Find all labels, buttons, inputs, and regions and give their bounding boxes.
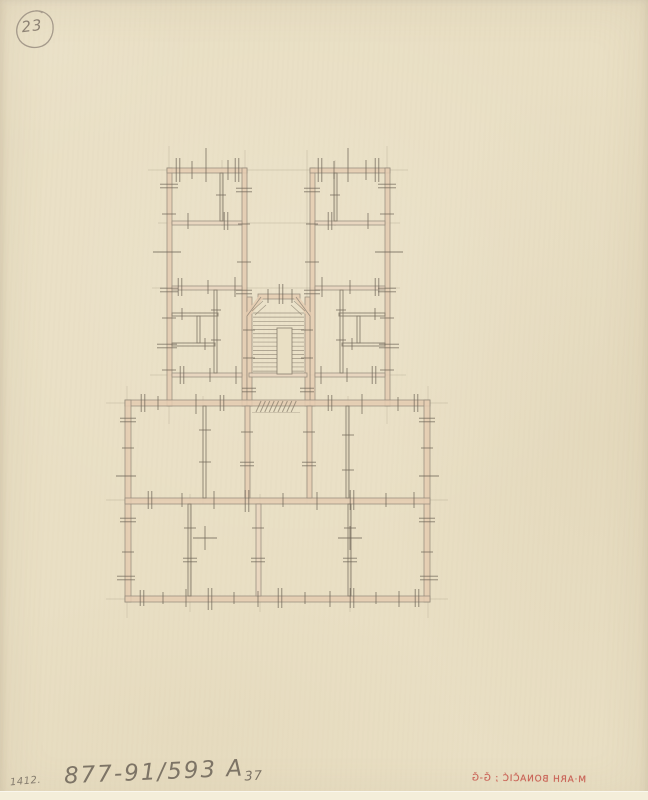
paper-sheet: 23 1412. 877-91/593 A37 M·ARH BONAČIĆ ; … [0,0,648,800]
floor-plan-drawing [0,0,648,800]
sheet-number-badge: 23 [11,7,57,53]
catalog-number-suffix: 37 [244,769,263,785]
scan-edge-strip [0,791,648,800]
